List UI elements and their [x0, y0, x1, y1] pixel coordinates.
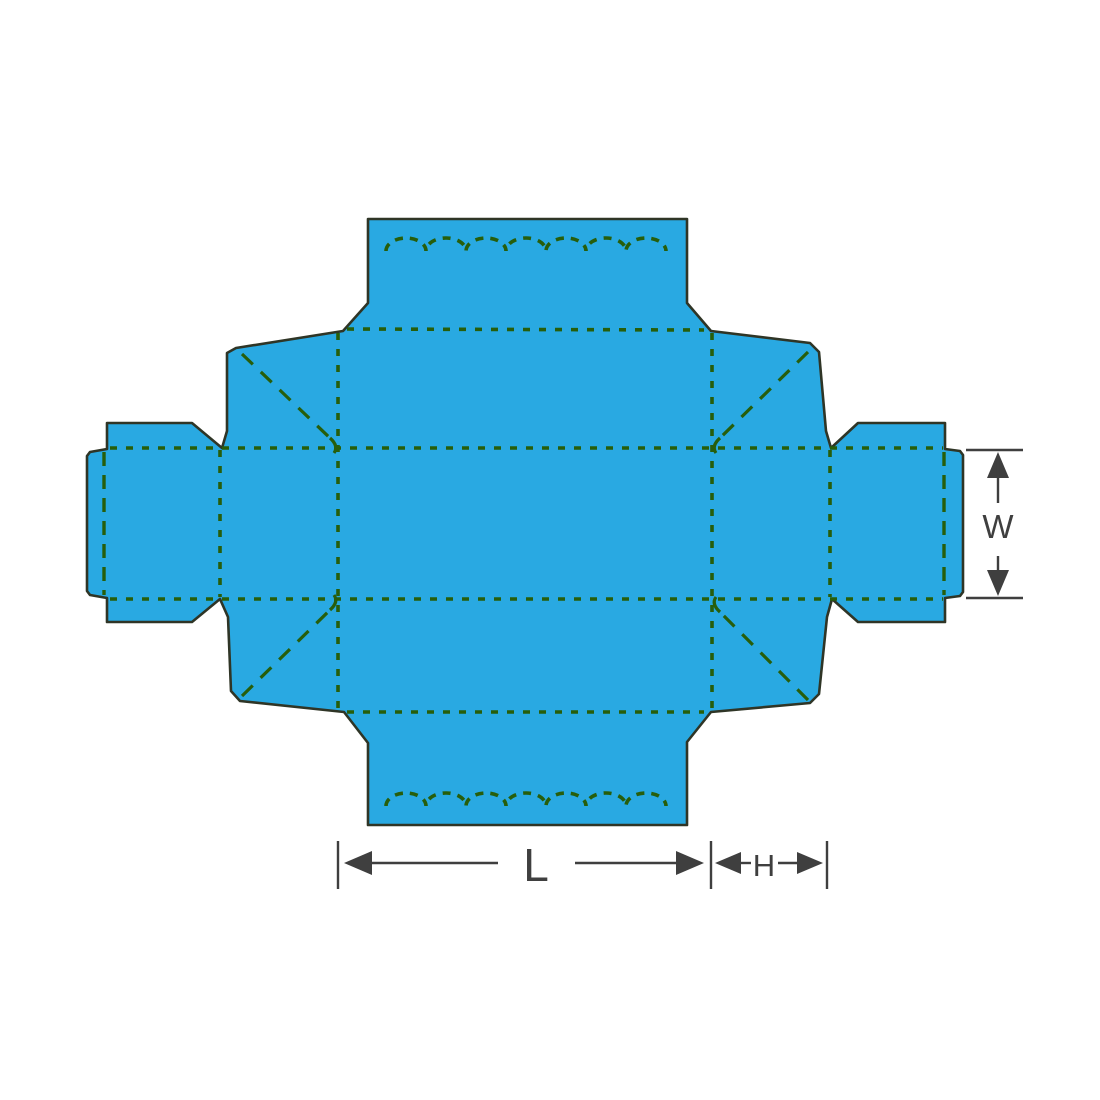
box-dieline-svg: L H W: [0, 0, 1100, 1100]
dimension-length: L: [344, 839, 704, 891]
dieline-diagram: L H W: [0, 0, 1100, 1100]
arrowhead-left-icon: [715, 852, 741, 874]
dieline-blank: [87, 219, 963, 825]
arrowhead-left-icon: [344, 851, 372, 875]
arrowhead-right-icon: [676, 851, 704, 875]
width-dimension-label: W: [982, 508, 1014, 545]
length-dimension-label: L: [523, 839, 549, 891]
dimension-height: H: [715, 848, 823, 883]
arrowhead-down-icon: [987, 570, 1009, 596]
dieline-outline: [87, 219, 963, 825]
arrowhead-right-icon: [797, 852, 823, 874]
height-dimension-label: H: [753, 848, 775, 883]
dimension-width: W: [966, 450, 1023, 598]
